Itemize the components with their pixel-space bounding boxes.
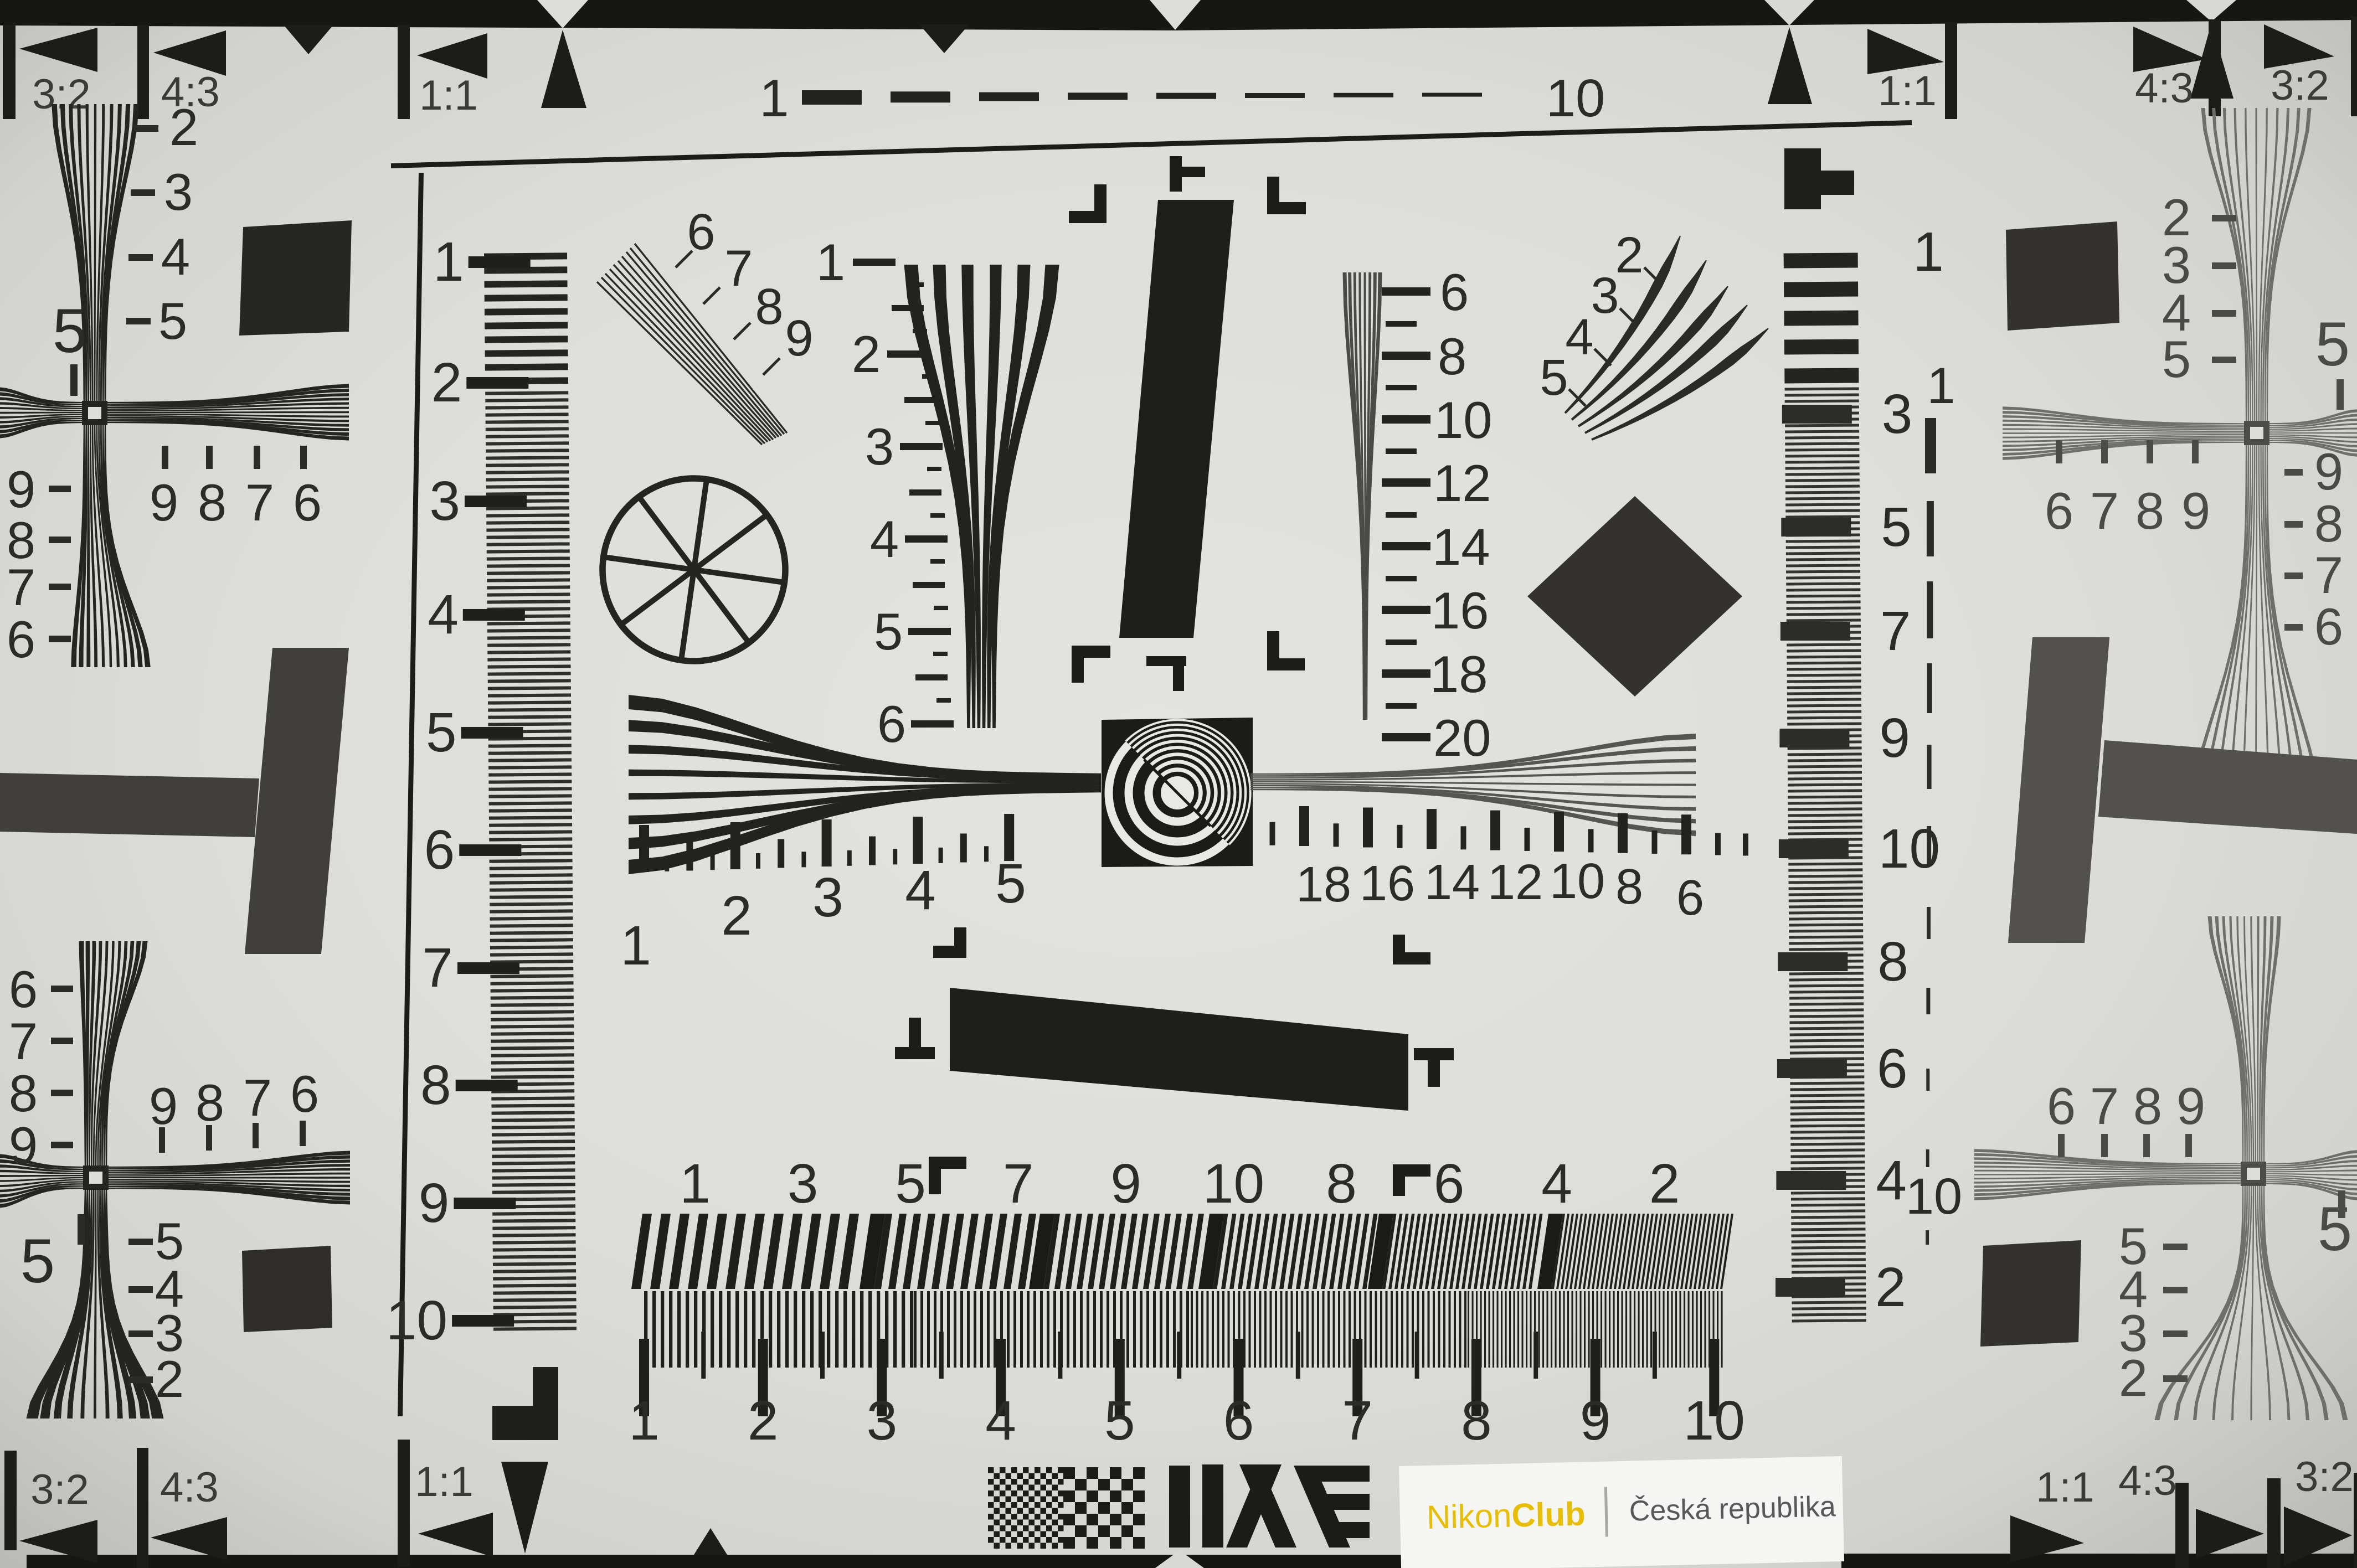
svg-text:1: 1 xyxy=(433,231,464,293)
svg-text:10: 10 xyxy=(1684,1390,1745,1452)
svg-text:8: 8 xyxy=(755,278,783,335)
svg-text:6: 6 xyxy=(1676,870,1704,926)
svg-text:4:3: 4:3 xyxy=(2135,65,2194,112)
svg-text:7: 7 xyxy=(2314,546,2343,604)
svg-text:4: 4 xyxy=(870,510,899,568)
svg-text:2: 2 xyxy=(721,885,752,947)
svg-text:7: 7 xyxy=(245,473,274,532)
svg-text:10: 10 xyxy=(1550,854,1605,909)
svg-text:9: 9 xyxy=(2181,482,2210,540)
svg-text:8: 8 xyxy=(198,473,227,532)
svg-text:5: 5 xyxy=(20,1226,55,1296)
svg-text:10: 10 xyxy=(1906,1168,1962,1225)
svg-text:1: 1 xyxy=(620,915,651,977)
svg-text:9: 9 xyxy=(2314,442,2343,501)
svg-text:5: 5 xyxy=(995,853,1026,915)
svg-text:8: 8 xyxy=(2135,482,2164,540)
svg-text:12: 12 xyxy=(1433,454,1491,512)
svg-text:4: 4 xyxy=(1876,1149,1907,1211)
svg-text:2: 2 xyxy=(852,325,881,383)
svg-text:5: 5 xyxy=(2315,310,2350,379)
svg-text:5: 5 xyxy=(1540,349,1568,406)
svg-text:14: 14 xyxy=(1432,518,1490,576)
svg-text:12: 12 xyxy=(1488,855,1543,910)
svg-text:1: 1 xyxy=(629,1390,660,1452)
svg-text:9: 9 xyxy=(785,310,813,367)
svg-text:4:3: 4:3 xyxy=(2118,1457,2177,1504)
svg-text:10: 10 xyxy=(1203,1153,1264,1215)
svg-text:1:1: 1:1 xyxy=(2036,1464,2094,1511)
svg-text:1: 1 xyxy=(816,233,845,291)
svg-text:NikonClub: NikonClub xyxy=(1426,1495,1586,1535)
svg-text:18: 18 xyxy=(1430,645,1488,703)
svg-text:9: 9 xyxy=(149,1077,178,1135)
svg-text:2: 2 xyxy=(1649,1153,1680,1215)
svg-text:9: 9 xyxy=(1110,1153,1141,1215)
svg-text:4:3: 4:3 xyxy=(160,1464,219,1511)
svg-text:10: 10 xyxy=(1434,391,1493,449)
svg-text:3: 3 xyxy=(1882,383,1913,445)
svg-text:6: 6 xyxy=(9,960,38,1018)
svg-text:6: 6 xyxy=(1223,1390,1254,1452)
svg-text:5: 5 xyxy=(1881,496,1912,558)
svg-text:7: 7 xyxy=(2090,482,2119,540)
svg-text:5: 5 xyxy=(2318,1194,2352,1263)
svg-text:4: 4 xyxy=(985,1390,1016,1452)
svg-text:6: 6 xyxy=(2047,1077,2076,1135)
svg-text:16: 16 xyxy=(1360,856,1415,911)
svg-text:2: 2 xyxy=(748,1390,779,1452)
svg-text:7: 7 xyxy=(2090,1077,2119,1135)
svg-text:7: 7 xyxy=(724,240,753,297)
svg-text:8: 8 xyxy=(2133,1077,2162,1135)
svg-text:1:1: 1:1 xyxy=(415,1458,474,1505)
svg-text:1: 1 xyxy=(680,1153,711,1215)
svg-text:6: 6 xyxy=(290,1065,319,1123)
svg-text:1: 1 xyxy=(759,69,789,128)
svg-text:3: 3 xyxy=(812,866,843,929)
svg-text:2: 2 xyxy=(1615,227,1643,283)
svg-text:8: 8 xyxy=(1438,327,1466,385)
svg-text:9: 9 xyxy=(7,460,35,518)
svg-text:7: 7 xyxy=(7,558,35,616)
svg-text:3: 3 xyxy=(865,417,894,476)
svg-text:8: 8 xyxy=(1615,859,1643,915)
svg-text:6: 6 xyxy=(2314,597,2343,656)
svg-text:5: 5 xyxy=(874,602,903,661)
svg-text:9: 9 xyxy=(1580,1390,1611,1452)
svg-text:9: 9 xyxy=(2176,1077,2205,1135)
svg-text:3: 3 xyxy=(1591,267,1619,324)
svg-text:8: 8 xyxy=(9,1064,38,1122)
svg-text:5: 5 xyxy=(895,1153,926,1215)
svg-text:7: 7 xyxy=(243,1069,272,1127)
svg-text:8: 8 xyxy=(1326,1153,1357,1215)
svg-text:5: 5 xyxy=(2162,330,2191,388)
svg-text:7: 7 xyxy=(422,937,453,999)
svg-text:5: 5 xyxy=(426,702,457,764)
svg-text:6: 6 xyxy=(1877,1038,1908,1100)
svg-text:6: 6 xyxy=(2045,482,2073,540)
svg-text:3: 3 xyxy=(429,470,460,532)
svg-text:Česká republika: Česká republika xyxy=(1629,1490,1836,1527)
svg-text:2: 2 xyxy=(155,1350,184,1408)
svg-text:14: 14 xyxy=(1424,855,1480,910)
svg-text:7: 7 xyxy=(1880,600,1911,662)
svg-text:7: 7 xyxy=(1342,1390,1373,1452)
svg-text:10: 10 xyxy=(1546,69,1605,128)
svg-text:7: 7 xyxy=(9,1012,38,1070)
svg-text:9: 9 xyxy=(419,1172,450,1234)
svg-text:6: 6 xyxy=(877,695,906,753)
svg-text:9: 9 xyxy=(150,473,178,532)
svg-text:9: 9 xyxy=(1879,707,1910,769)
svg-text:9: 9 xyxy=(9,1116,38,1174)
svg-text:1:1: 1:1 xyxy=(1878,68,1937,115)
svg-text:6: 6 xyxy=(293,473,322,532)
svg-text:3: 3 xyxy=(788,1153,819,1215)
svg-text:2: 2 xyxy=(431,352,462,414)
svg-text:4: 4 xyxy=(428,584,459,646)
svg-text:8: 8 xyxy=(420,1054,451,1116)
svg-text:4: 4 xyxy=(161,228,190,286)
svg-text:8: 8 xyxy=(1461,1390,1492,1452)
svg-text:5: 5 xyxy=(158,292,187,350)
svg-text:4: 4 xyxy=(905,859,936,921)
svg-text:5: 5 xyxy=(1104,1390,1135,1452)
svg-text:8: 8 xyxy=(2314,494,2343,553)
svg-text:5: 5 xyxy=(53,296,87,365)
svg-text:6: 6 xyxy=(1440,263,1469,321)
svg-text:8: 8 xyxy=(195,1074,224,1132)
svg-text:1: 1 xyxy=(1913,221,1944,283)
svg-text:3:2: 3:2 xyxy=(30,1466,89,1513)
svg-text:6: 6 xyxy=(687,204,715,260)
svg-text:4: 4 xyxy=(1541,1153,1572,1215)
svg-text:3:2: 3:2 xyxy=(2271,62,2329,109)
svg-text:7: 7 xyxy=(1003,1153,1034,1215)
svg-text:20: 20 xyxy=(1433,709,1491,767)
svg-text:18: 18 xyxy=(1296,857,1351,912)
svg-text:2: 2 xyxy=(1875,1256,1906,1318)
svg-text:6: 6 xyxy=(1434,1153,1465,1215)
svg-text:1: 1 xyxy=(1927,358,1955,414)
svg-text:6: 6 xyxy=(7,610,35,668)
svg-text:10: 10 xyxy=(386,1290,447,1352)
svg-text:1:1: 1:1 xyxy=(419,72,478,119)
svg-text:4: 4 xyxy=(1565,309,1593,365)
svg-text:3: 3 xyxy=(867,1390,898,1452)
svg-text:3:2: 3:2 xyxy=(2295,1453,2354,1500)
svg-text:6: 6 xyxy=(424,819,455,881)
svg-text:3: 3 xyxy=(164,163,193,221)
svg-text:8: 8 xyxy=(1877,931,1908,993)
svg-text:16: 16 xyxy=(1431,581,1489,639)
svg-text:2: 2 xyxy=(2119,1349,2148,1407)
svg-text:2: 2 xyxy=(169,98,198,156)
